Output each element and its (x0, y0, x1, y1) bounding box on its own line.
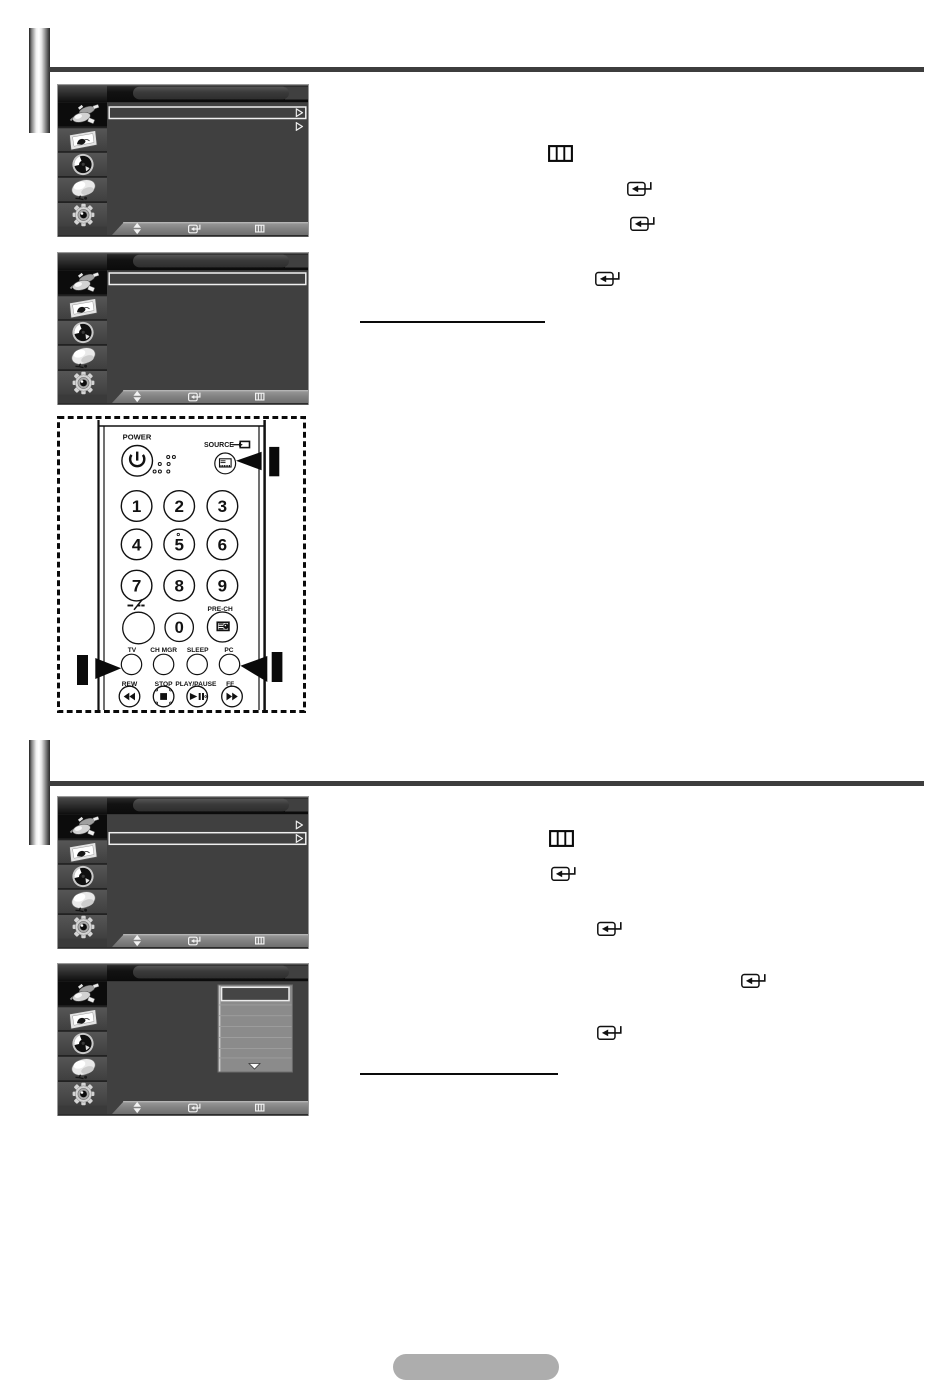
svg-text:6: 6 (218, 536, 227, 555)
svg-text:SOURCE: SOURCE (204, 442, 234, 449)
svg-text:1: 1 (132, 497, 141, 516)
svg-text:SLEEP: SLEEP (187, 647, 209, 654)
svg-text:0: 0 (175, 619, 184, 637)
svg-text:CH MGR: CH MGR (150, 647, 177, 654)
svg-text:7: 7 (132, 577, 141, 596)
svg-text:5: 5 (174, 536, 183, 555)
svg-text:PC: PC (224, 647, 233, 654)
svg-text:4: 4 (132, 536, 142, 555)
svg-text:POWER: POWER (123, 432, 152, 441)
svg-text:2: 2 (174, 497, 183, 516)
svg-text:9: 9 (218, 577, 227, 596)
svg-text:TV: TV (128, 647, 137, 654)
svg-text:8: 8 (174, 577, 183, 596)
svg-text:3: 3 (218, 497, 227, 516)
